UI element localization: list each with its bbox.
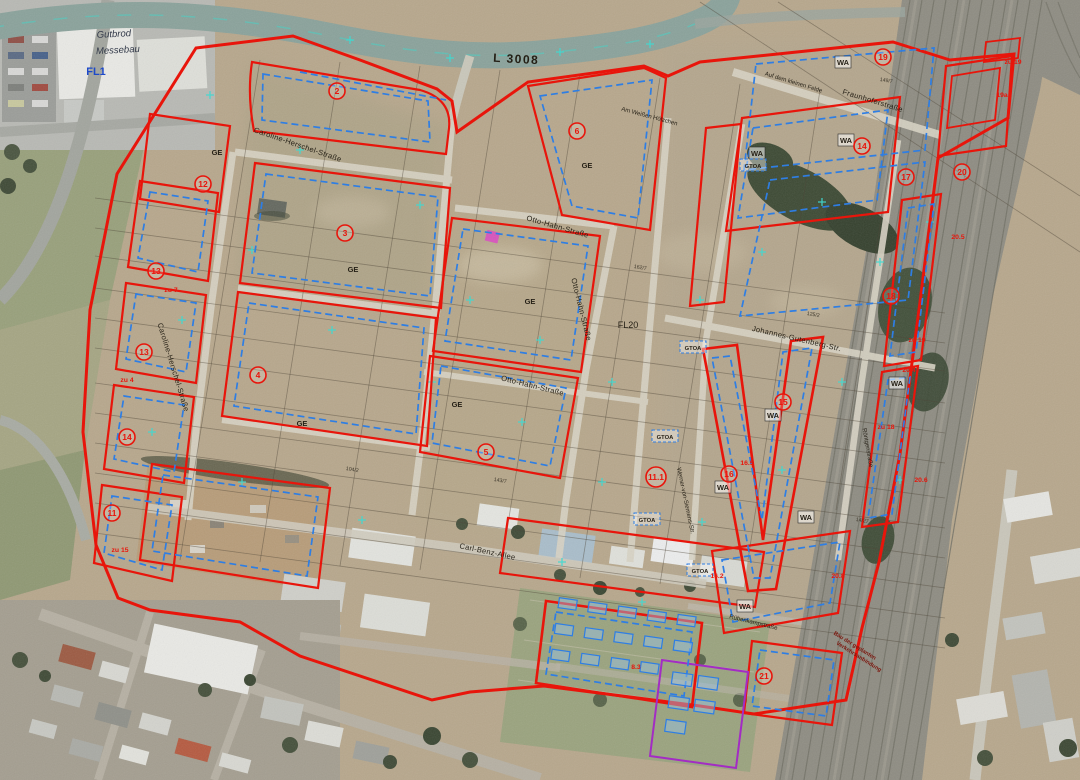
use-label-gtoa-3: GTOA: [657, 435, 674, 441]
zone-marker-11.1-10: 11.1: [646, 467, 666, 487]
use-label-gtoa-2: GTOA: [685, 346, 702, 352]
svg-text:14: 14: [122, 432, 132, 442]
use-label-wa-3: WA: [751, 149, 764, 158]
svg-text:18: 18: [886, 291, 896, 301]
svg-text:3: 3: [343, 228, 348, 238]
zone-marker-14-11: 14: [854, 138, 870, 154]
handwriting-line-2: Messebau: [96, 44, 141, 57]
zone-marker-19-16: 19: [875, 49, 891, 65]
use-label-wa-4: WA: [767, 411, 780, 420]
use-label-wa-1: WA: [837, 58, 850, 67]
zone-marker-13-6: 13: [148, 263, 164, 279]
svg-text:13: 13: [139, 347, 149, 357]
use-label-ge-1: GE: [212, 148, 223, 157]
aerial-zoning-map: L 3008Caroline-Herschel-StraßeCaroline-H…: [0, 0, 1080, 780]
svg-text:15: 15: [778, 397, 788, 407]
zone-marker-13-7: 13: [136, 344, 152, 360]
use-label-wa-5: WA: [891, 379, 904, 388]
zone-marker-15-12: 15: [775, 394, 791, 410]
zone-note-zu18: zu 18: [878, 424, 895, 431]
area-label-fl1: FL1: [86, 66, 106, 78]
svg-text:6: 6: [575, 126, 580, 136]
use-label-wa-8: WA: [739, 602, 752, 611]
zone-marker-14-8: 14: [119, 429, 135, 445]
use-label-wa-2: WA: [840, 136, 853, 145]
zoning-plan-screenshot: L 3008Caroline-Herschel-StraßeCaroline-H…: [0, 0, 1080, 780]
svg-text:2: 2: [335, 86, 340, 96]
zone-note-zu15: zu 15: [112, 547, 129, 554]
use-label-gtoa-5: GTOA: [692, 569, 709, 575]
zone-marker-3-1: 3: [337, 225, 353, 241]
svg-text:19: 19: [878, 52, 888, 62]
svg-text:5: 5: [484, 447, 489, 457]
zone-marker-21-18: 21: [756, 668, 772, 684]
use-label-ge-4: GE: [525, 297, 536, 306]
svg-text:13: 13: [151, 266, 161, 276]
zone-marker-11-9: 11: [104, 505, 120, 521]
zone-marker-17-14: 17: [898, 169, 914, 185]
zone-note-16-2: 16.2: [710, 573, 723, 580]
svg-text:16: 16: [724, 469, 734, 479]
zone-marker-2-0: 2: [329, 83, 345, 99]
svg-text:17: 17: [901, 172, 911, 182]
handwriting-line-1: Gutbrod: [96, 28, 132, 41]
zone-marker-4-2: 4: [250, 367, 266, 383]
svg-text:11: 11: [108, 508, 117, 518]
zone-note-zu7: zu 7: [164, 287, 177, 294]
zone-marker-16-13: 16: [721, 466, 737, 482]
zone-note-19a: 19a: [996, 92, 1008, 99]
zone-note-zu4: zu 4: [120, 377, 133, 384]
use-label-ge-2: GE: [348, 265, 359, 274]
zone-note-zu19-b: zu 19: [1005, 59, 1022, 66]
road-label-l3008: L 3008: [493, 51, 540, 67]
svg-text:21: 21: [759, 671, 769, 681]
svg-text:4: 4: [256, 370, 261, 380]
use-label-gtoa-4: GTOA: [639, 518, 656, 524]
area-label-fl20: FL20: [618, 320, 639, 330]
zone-note-8-3: 8.3: [631, 664, 641, 671]
zone-note-20-6: 20.6: [914, 477, 927, 484]
zone-note-20-8: 20.8: [831, 573, 844, 580]
zone-note-16-5: 16.5: [740, 460, 753, 467]
use-label-ge-6: GE: [452, 400, 463, 409]
svg-text:11.1: 11.1: [648, 472, 664, 482]
zone-marker-18-15: 18: [883, 288, 899, 304]
zone-marker-12-5: 12: [195, 176, 211, 192]
svg-text:20: 20: [957, 167, 967, 177]
svg-text:14: 14: [857, 141, 867, 151]
zone-note-20-4: 20.4: [902, 367, 915, 374]
use-label-wa-7: WA: [800, 513, 813, 522]
zone-note-zu19-a: zu 19: [909, 337, 926, 344]
svg-text:12: 12: [198, 179, 208, 189]
use-label-gtoa-1: GTOA: [745, 164, 762, 170]
zone-note-20-5: 20.5: [951, 234, 964, 241]
zone-marker-20-17: 20: [954, 164, 970, 180]
zone-marker-5-3: 5: [478, 444, 494, 460]
zone-marker-6-4: 6: [569, 123, 585, 139]
use-label-wa-6: WA: [717, 483, 730, 492]
use-label-ge-3: GE: [297, 419, 308, 428]
use-label-ge-5: GE: [582, 161, 593, 170]
